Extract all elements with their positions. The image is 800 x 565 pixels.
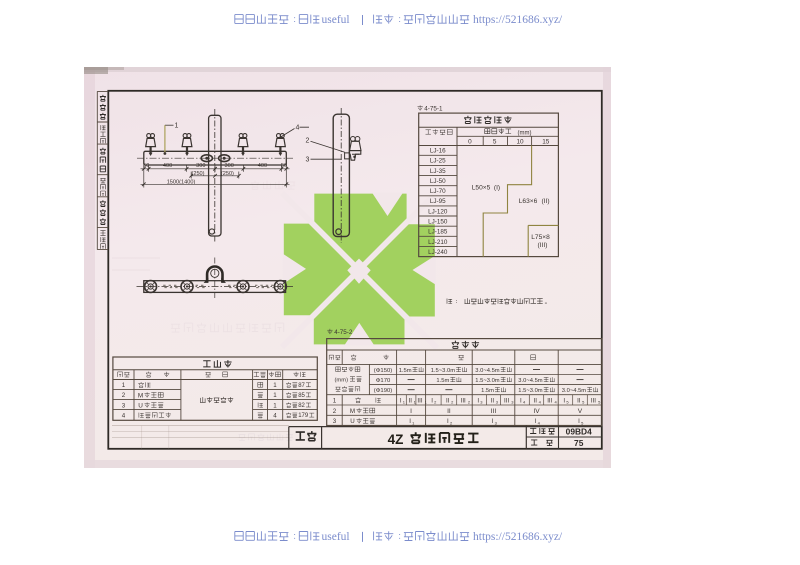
svg-text:I: I (535, 418, 537, 425)
svg-text:L75×8: L75×8 (531, 234, 550, 241)
svg-text:400: 400 (258, 163, 267, 169)
svg-text:https://521686.xyz/: https://521686.xyz/ (473, 531, 563, 543)
svg-text:0: 0 (468, 139, 472, 146)
svg-text:I: I (477, 397, 479, 404)
svg-text:1: 1 (273, 382, 277, 389)
svg-text:I: I (520, 397, 522, 404)
svg-text:4-75-2: 4-75-2 (334, 329, 353, 336)
svg-text:III: III (491, 408, 497, 415)
svg-text:III: III (504, 397, 509, 404)
svg-text:Φ170: Φ170 (376, 378, 391, 384)
svg-text:15: 15 (542, 139, 550, 146)
svg-text:87: 87 (298, 383, 305, 389)
svg-text:L63×6: L63×6 (519, 198, 538, 205)
svg-text:II: II (491, 397, 495, 404)
svg-text:L50×5: L50×5 (472, 185, 491, 192)
svg-text:U: U (350, 418, 354, 425)
svg-text:LJ-95: LJ-95 (430, 198, 446, 205)
svg-text:3: 3 (306, 157, 310, 164)
svg-text:I: I (409, 418, 411, 425)
svg-text:(Φ150): (Φ150) (374, 368, 392, 374)
svg-text:(250): (250) (191, 171, 204, 177)
svg-text:(Φ190): (Φ190) (374, 388, 392, 394)
svg-text:(mm): (mm) (335, 377, 349, 383)
svg-text:LJ-25: LJ-25 (430, 158, 446, 165)
svg-text:I: I (447, 418, 449, 425)
svg-text:LJ-70: LJ-70 (430, 188, 446, 195)
svg-text:I: I (578, 418, 580, 425)
svg-text:IV: IV (533, 408, 540, 415)
svg-text:3.0~4.5m: 3.0~4.5m (562, 388, 587, 394)
svg-text:400: 400 (163, 163, 172, 169)
svg-text:I: I (492, 418, 494, 425)
svg-text:85: 85 (298, 393, 305, 399)
svg-text:https://521686.xyz/: https://521686.xyz/ (473, 14, 563, 26)
svg-text:3: 3 (122, 402, 126, 409)
svg-text:II: II (446, 397, 450, 404)
svg-text:50: 50 (281, 163, 287, 169)
svg-text:1: 1 (273, 392, 277, 399)
svg-text:LJ-210: LJ-210 (428, 239, 448, 246)
svg-text:LJ-120: LJ-120 (428, 208, 448, 215)
svg-text:(250): (250) (221, 171, 234, 177)
svg-text:3: 3 (333, 418, 337, 425)
svg-text:3.0~4.5m: 3.0~4.5m (518, 378, 543, 384)
svg-text:1.5m: 1.5m (481, 388, 494, 394)
svg-text:M: M (350, 408, 355, 415)
svg-text:II: II (577, 397, 581, 404)
svg-text:LJ-240: LJ-240 (428, 249, 448, 256)
svg-text:(III): (III) (538, 242, 548, 249)
svg-text:1.5~3.0m: 1.5~3.0m (518, 388, 543, 394)
svg-text:1: 1 (333, 398, 337, 405)
svg-text:2: 2 (333, 408, 337, 415)
svg-text:82: 82 (298, 403, 305, 409)
svg-text:I: I (410, 408, 412, 415)
svg-text:useful: useful (322, 531, 350, 543)
svg-text:(I): (I) (494, 185, 500, 192)
svg-text:LJ-16: LJ-16 (430, 148, 446, 155)
svg-text:II: II (534, 397, 538, 404)
svg-text:III: III (461, 397, 466, 404)
svg-text:10: 10 (516, 139, 524, 146)
svg-text:1500(1400): 1500(1400) (167, 179, 196, 185)
svg-text:III: III (417, 397, 422, 404)
svg-text:1: 1 (122, 382, 126, 389)
svg-text:4: 4 (122, 412, 126, 419)
svg-text:2: 2 (122, 392, 126, 399)
svg-text:LJ-150: LJ-150 (428, 219, 448, 226)
svg-text:1.5~3.0m: 1.5~3.0m (431, 368, 456, 374)
svg-text:5: 5 (493, 139, 497, 146)
svg-text:I: I (563, 397, 565, 404)
svg-text:4-75-1: 4-75-1 (424, 105, 443, 112)
svg-text:1.5m: 1.5m (399, 368, 412, 374)
svg-text:III: III (547, 397, 552, 404)
svg-text:4: 4 (296, 125, 300, 132)
svg-text:II: II (447, 408, 451, 415)
svg-text:III: III (591, 397, 596, 404)
svg-text:1.5m: 1.5m (436, 378, 449, 384)
svg-text:09BD4: 09BD4 (566, 426, 592, 436)
svg-text:2: 2 (306, 138, 310, 145)
svg-text:50: 50 (143, 163, 149, 169)
svg-text:useful: useful (322, 14, 350, 26)
svg-text:(mm): (mm) (518, 130, 532, 136)
svg-text:1.5~3.0m: 1.5~3.0m (475, 378, 500, 384)
svg-text:I: I (400, 397, 402, 404)
svg-text:I: I (431, 397, 433, 404)
svg-text:LJ-185: LJ-185 (428, 229, 448, 236)
svg-text:4: 4 (273, 412, 277, 419)
svg-text:1: 1 (273, 402, 277, 409)
svg-text:300: 300 (196, 163, 205, 169)
svg-text:II: II (409, 397, 413, 404)
svg-text:LJ-35: LJ-35 (430, 168, 446, 175)
svg-text:V: V (578, 408, 583, 415)
svg-text:1: 1 (175, 123, 179, 130)
svg-text:3.0~4.5m: 3.0~4.5m (475, 368, 500, 374)
svg-text:75: 75 (574, 438, 584, 448)
svg-text:U: U (138, 403, 143, 410)
svg-text:LJ-50: LJ-50 (430, 178, 446, 185)
svg-text:4Z: 4Z (388, 432, 404, 447)
svg-text:(II): (II) (541, 198, 549, 205)
svg-text:M: M (138, 392, 143, 399)
svg-text:300: 300 (225, 163, 234, 169)
svg-text:179: 179 (298, 413, 309, 419)
